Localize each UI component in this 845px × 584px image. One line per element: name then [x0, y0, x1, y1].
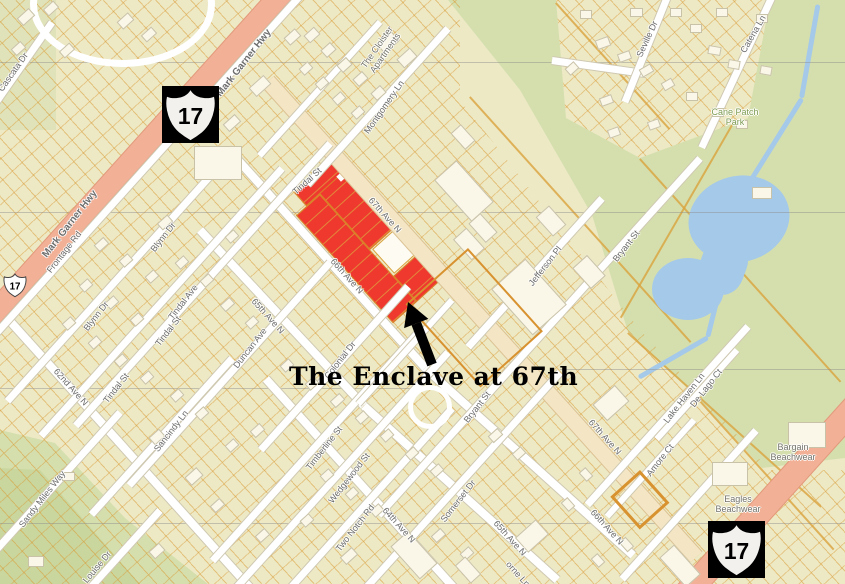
- street-label: Blynn Dr: [81, 299, 110, 332]
- street-label: Tindal St: [291, 166, 324, 197]
- street-label: Catena Ln: [738, 14, 767, 55]
- street-label: 67th Ave N: [587, 417, 624, 456]
- street-label: Somerset Dr: [439, 478, 478, 524]
- street-label: Tindal St: [101, 371, 131, 405]
- svg-text:17: 17: [724, 538, 749, 564]
- map-canvas[interactable]: Mark Garner HwyMark Garner HwyFrontage R…: [0, 0, 845, 584]
- map-annotation-title: The Enclave at 67th: [289, 362, 578, 391]
- place-label: BargainBeachwear: [770, 442, 815, 462]
- street-label: 64th Ave N: [381, 505, 418, 544]
- us-route-17-shield-icon-small: 17: [2, 272, 28, 298]
- place-label: The CloisterApartments: [359, 24, 403, 75]
- us-route-17-shield-icon: 17: [708, 521, 765, 578]
- street-label: 66th Ave N: [589, 507, 626, 546]
- street-label: Bryant St: [462, 389, 493, 424]
- street-label: Sandy Miles Way: [17, 469, 67, 530]
- street-label: Tindal Ave: [166, 283, 199, 322]
- street-label: Blynn Dr: [148, 220, 177, 253]
- street-label: 65th Ave N: [492, 518, 529, 557]
- street-label: Wedgewood St: [326, 451, 371, 505]
- street-label: Cascata Dr: [0, 51, 30, 94]
- street-label: Montgomery Ln: [362, 79, 406, 136]
- street-label: Amore Ct: [644, 442, 675, 478]
- street-label: Jefferson Pl: [526, 244, 563, 287]
- us-route-17-shield-icon: 17: [162, 86, 219, 143]
- street-label: 67th Ave N: [367, 195, 404, 234]
- street-label: Tindal St: [153, 314, 183, 348]
- street-label: 62nd Ave N: [52, 366, 90, 407]
- street-labels-layer: Mark Garner HwyMark Garner HwyFrontage R…: [0, 0, 845, 584]
- svg-text:17: 17: [10, 282, 21, 293]
- street-label: 66th Ave N: [329, 256, 366, 295]
- street-label: Seville Dr: [634, 19, 659, 58]
- street-label: Bryant St: [611, 228, 642, 263]
- svg-text:17: 17: [178, 103, 203, 129]
- street-label: Sancindy Ln: [152, 408, 190, 453]
- street-label: 65th Ave N: [250, 296, 287, 335]
- place-label: EaglesBeachwear: [715, 494, 760, 514]
- street-label: Mark Garner Hwy: [214, 27, 273, 99]
- street-label: orne Ln: [504, 559, 532, 584]
- street-label: Timberline St: [304, 424, 344, 472]
- street-label: Louise Dr: [81, 549, 113, 584]
- place-label: Cane PatchPark: [711, 107, 758, 127]
- street-label: Two Notch Rd: [334, 503, 377, 554]
- street-label: Duncan Ave: [231, 326, 269, 370]
